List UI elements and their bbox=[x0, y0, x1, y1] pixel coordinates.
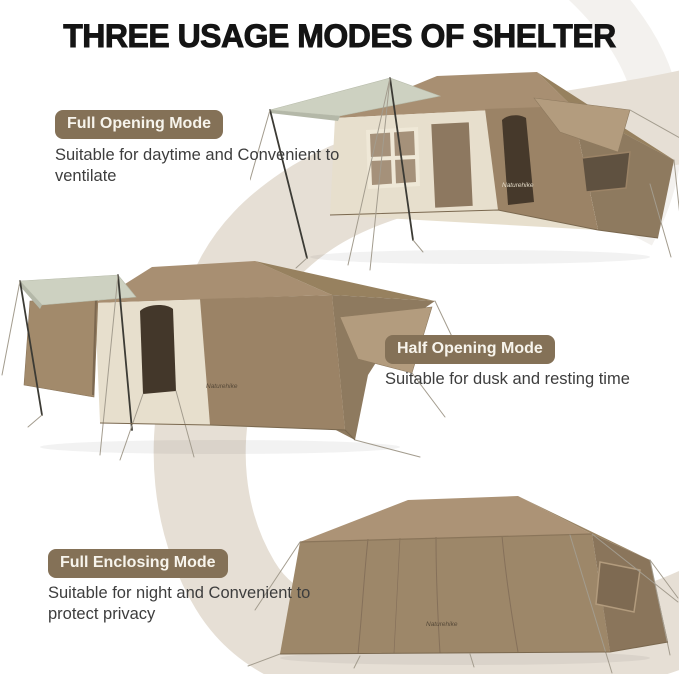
mode-description-full-opening: Suitable for daytime and Convenient to v… bbox=[55, 145, 341, 187]
brand-logo-tent3: Naturehike bbox=[426, 621, 458, 628]
mode-description-full-enclosing: Suitable for night and Convenient to pro… bbox=[48, 583, 354, 625]
mode-badge-full-opening: Full Opening Mode bbox=[55, 110, 223, 139]
tent2-front-right-panel bbox=[200, 295, 345, 430]
tent2-open-door-flap bbox=[24, 298, 98, 397]
tent2-door-opening bbox=[140, 305, 176, 394]
mode-badge-half-opening: Half Opening Mode bbox=[385, 335, 555, 364]
mode-description-half-opening: Suitable for dusk and resting time bbox=[385, 369, 679, 390]
tent1-right-window-mesh bbox=[582, 152, 630, 192]
brand-logo-tent1: Naturehike bbox=[502, 182, 534, 189]
tent1-window bbox=[366, 127, 420, 189]
mode-badge-full-enclosing: Full Enclosing Mode bbox=[48, 549, 228, 578]
tent-photo-full-enclosing: Naturehike bbox=[240, 470, 679, 674]
brand-logo-tent2: Naturehike bbox=[206, 383, 238, 390]
product-infographic: THREE USAGE MODES OF SHELTER bbox=[0, 0, 679, 674]
page-title: THREE USAGE MODES OF SHELTER bbox=[0, 18, 679, 55]
tent2-ground-shadow bbox=[40, 440, 400, 454]
tent1-door-panel bbox=[430, 121, 474, 209]
tent3-side-window bbox=[596, 562, 640, 612]
